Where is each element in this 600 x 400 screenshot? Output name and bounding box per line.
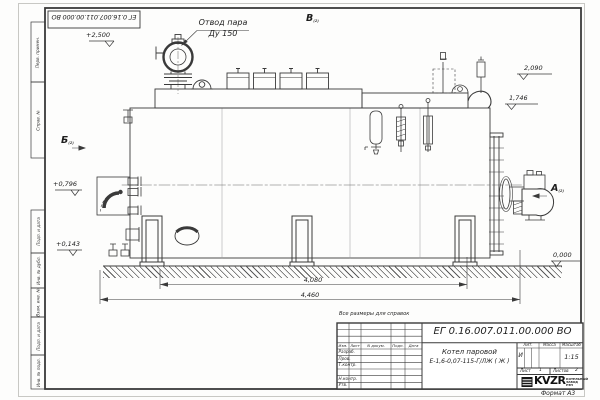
- row-utv: Утв.: [339, 383, 348, 387]
- col-data: Дата: [405, 344, 422, 348]
- row-t-kontr: Т.контр.: [339, 363, 357, 367]
- border-label-sprav-no: Справ. №: [31, 82, 45, 158]
- support-legs: [103, 216, 562, 266]
- product-name-line1: Котел паровой: [422, 349, 517, 356]
- rear-drum-fittings: [433, 53, 491, 109]
- elevation-steam-valve: +2,500: [86, 32, 110, 39]
- burner: [500, 171, 554, 221]
- level-gauges: [365, 99, 433, 155]
- doc-number-top: ЕГ 0.16.007.011.00.000 ВО: [48, 13, 140, 20]
- title-block-doc-number: ЕГ 0.16.007.011.00.000 ВО: [422, 327, 583, 338]
- border-label-podp-data-1: Подп. и дата: [31, 210, 45, 253]
- border-label-inv-dubl: Инв. № дубл.: [31, 253, 45, 288]
- sheets-value: 2: [575, 369, 578, 374]
- front-fittings: [97, 110, 142, 256]
- dimension-boiler-length: 4,080: [293, 277, 333, 284]
- border-label-vzam-inv: Взам. инв. №: [31, 288, 45, 317]
- view-mark-top: В(2): [306, 14, 319, 24]
- col-list: Лист: [349, 344, 361, 348]
- elevation-burner-axis: +0,796: [53, 181, 77, 188]
- scale-value: 1:15: [560, 354, 583, 361]
- elevation-ground: 0,000: [553, 252, 572, 259]
- col-izm: Изм.: [337, 344, 349, 348]
- lit-value: И: [517, 353, 524, 359]
- kvzr-logo-icon: [522, 377, 533, 387]
- scale-header: Масштаб: [560, 343, 583, 347]
- steam-outlet-callout-line1: Отвод пара: [196, 19, 250, 27]
- view-mark-right: А(2): [551, 184, 564, 194]
- sheet-value: 1: [539, 369, 542, 374]
- border-label-perv-primen: Перв. примен.: [31, 22, 45, 82]
- kvzr-logo-subtext: КОТЕЛЬНЫЙ ЗАВОД РЭП: [566, 378, 583, 388]
- boiler-body: [122, 89, 524, 258]
- elevation-manhole: +0,143: [56, 241, 80, 248]
- view-mark-left: Б(2): [61, 136, 74, 146]
- mass-header: Масса: [539, 343, 560, 347]
- drawing-sheet: Перв. примен. Справ. № Подп. и дата Инв.…: [0, 0, 600, 400]
- kvzr-logo-text: KVZR: [534, 375, 565, 387]
- dimension-overall-length: 4,460: [290, 292, 330, 299]
- sheet-label: Лист: [520, 369, 531, 373]
- elevation-drum-top: 1,746: [509, 95, 528, 102]
- border-label-podp-data-2: Подп. и дата: [31, 317, 45, 355]
- elevation-safety-valve: 2,090: [524, 65, 543, 72]
- row-razrab: Разраб.: [339, 350, 355, 354]
- reference-note: Все размеры для справок: [339, 312, 409, 317]
- lit-header: Лит.: [517, 343, 539, 347]
- col-podp: Подп.: [391, 344, 405, 348]
- border-label-inv-podl: Инв. № подл.: [31, 355, 45, 389]
- steam-outlet-callout-line2: Ду 150: [196, 30, 250, 38]
- row-n-kontr: Н.контр.: [339, 377, 358, 381]
- drawing-canvas: [0, 0, 600, 400]
- leaders-and-view-arrows: [72, 31, 547, 199]
- format-note: Формат А3: [541, 391, 575, 397]
- row-prov: Пров.: [339, 357, 351, 361]
- product-name-line2: Е-1,6-0,07-115-Г/ЛЖ ( Ж ): [422, 359, 517, 365]
- safety-valve-boxes: [227, 69, 329, 90]
- elevation-marks: [55, 41, 580, 267]
- col-n-dokum: N докум.: [361, 344, 391, 348]
